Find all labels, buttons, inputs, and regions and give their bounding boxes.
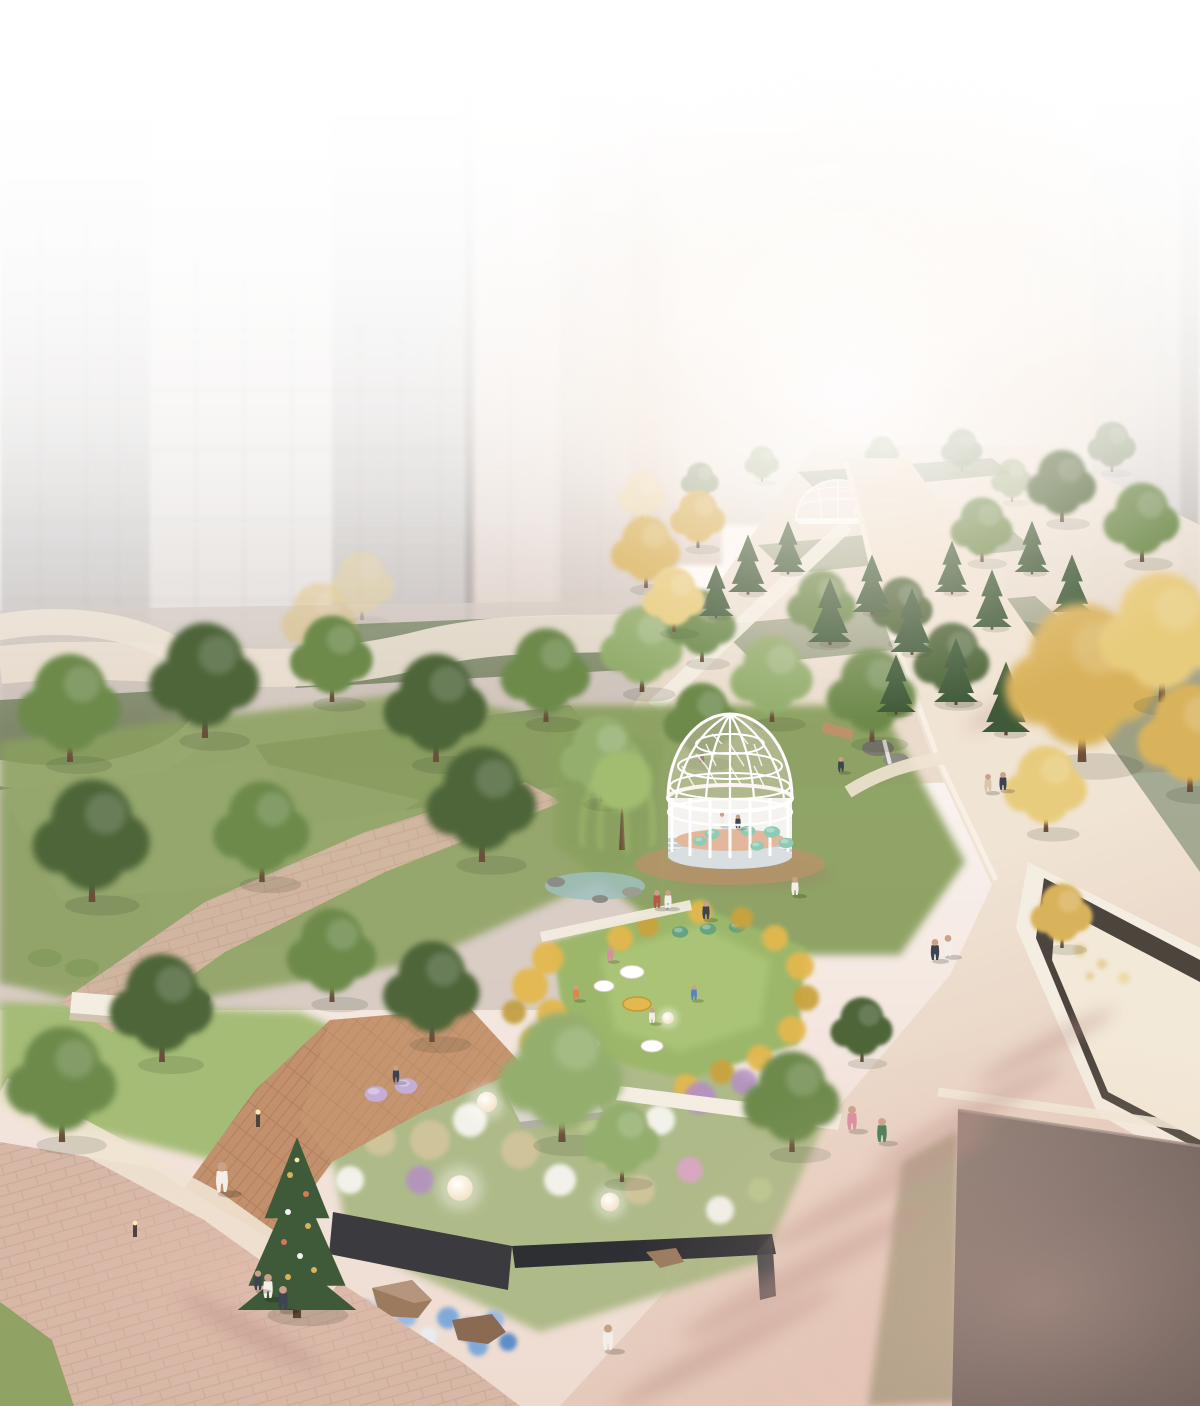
courtyard-rendering: [0, 0, 1200, 1406]
rendering-canvas: [0, 0, 1200, 1406]
yellow-disc-seat: [623, 997, 651, 1011]
